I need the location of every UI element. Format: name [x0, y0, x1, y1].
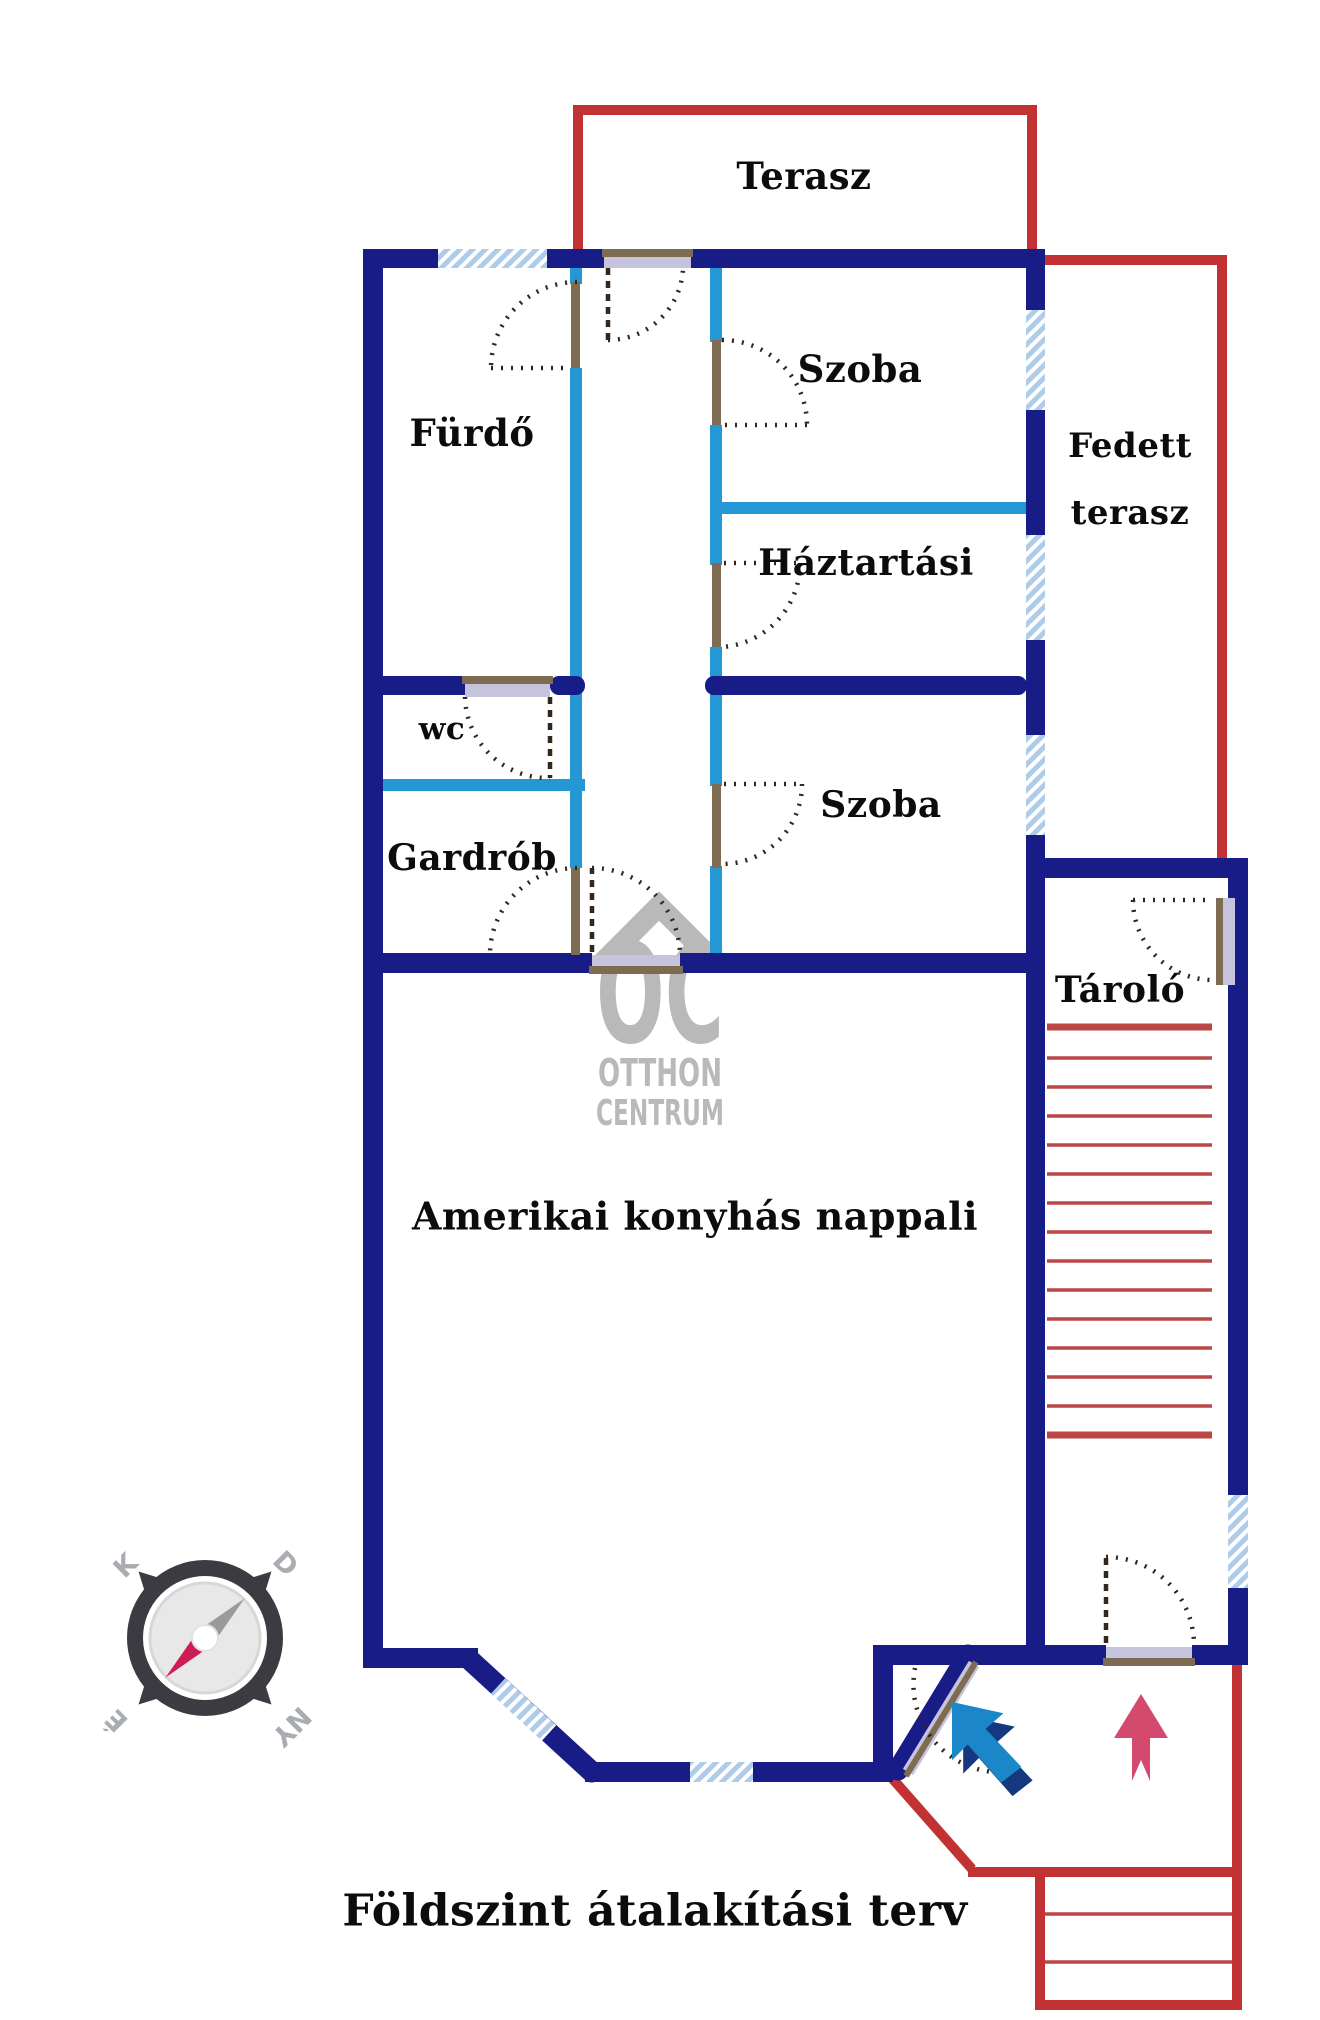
wall-furdo-wc-b: [550, 676, 585, 695]
room-label-fedett-line2: terasz: [1068, 480, 1192, 547]
door-corridor-fill: [592, 955, 680, 966]
compass-letter-east: K: [108, 1547, 145, 1584]
room-label-fedett-line1: Fedett: [1068, 413, 1192, 480]
porch-steps: [1045, 1914, 1232, 1962]
partition-corridor-left-b: [570, 368, 582, 868]
door-tarolo-leaf: [1216, 898, 1223, 985]
wall-haztartasi-szoba: [705, 676, 1027, 695]
partition-corridor-right-d: [710, 866, 722, 955]
window-right-3: [1026, 735, 1045, 835]
partition-wc-gardrob: [383, 779, 585, 791]
wall-right: [1026, 249, 1045, 1645]
floor-plan-canvas: OC OTTHON CENTRUM: [0, 0, 1320, 2020]
door-stairhall-lintel: [1103, 1658, 1195, 1666]
door-terasz-lintel: [602, 249, 693, 257]
wall-nappali-top-b: [680, 953, 1027, 973]
partition-corridor-right-a: [710, 267, 722, 342]
door-szoba1-leaf: [712, 340, 721, 425]
blue-arrow-body: [952, 1702, 1021, 1783]
window-right-1: [1026, 310, 1045, 410]
window-top-wall: [438, 249, 547, 268]
entry-arrows: [952, 1694, 1168, 1796]
wall-bay-right-vertical: [873, 1645, 893, 1782]
wall-left: [363, 249, 383, 1668]
door-szoba2-arc: [722, 784, 802, 864]
wall-furdo-wc-a: [363, 676, 465, 695]
window-stairhall-right: [1228, 1495, 1248, 1588]
watermark-line2: CENTRUM: [596, 1093, 724, 1134]
stair-treads: [1047, 1058, 1212, 1406]
door-tarolo-fill: [1223, 898, 1235, 985]
page-title: Földszint átalakítási terv: [342, 1886, 967, 1937]
door-wc-fill: [465, 684, 550, 697]
wall-nappali-top-a: [383, 953, 592, 973]
partition-corridor-right-c: [710, 647, 722, 786]
fedett-terasz-red-outline: [1045, 260, 1222, 858]
room-label-fedett-terasz: Fedett terasz: [1068, 413, 1192, 547]
door-wc-lintel: [462, 676, 553, 684]
compass-letter-north: É: [99, 1703, 135, 1739]
door-corridor-lintel: [589, 966, 683, 974]
otthon-centrum-watermark: OC OTTHON CENTRUM: [596, 906, 724, 1134]
door-gardrob-leaf: [571, 868, 580, 955]
door-wc-arc: [465, 697, 550, 778]
watermark-line1: OTTHON: [598, 1051, 722, 1095]
partition-szoba-haztartasi: [722, 502, 1027, 514]
door-szoba1-arc: [722, 340, 807, 425]
room-label-szoba-felso: Szoba: [798, 347, 923, 391]
door-gardrob-arc: [490, 868, 577, 953]
wall-stairhall-right-b: [1228, 1588, 1248, 1645]
window-bay-diagonal: [498, 1686, 549, 1733]
window-right-2: [1026, 535, 1045, 640]
staircase: [1047, 1027, 1212, 1435]
door-stairhall-fill: [1106, 1647, 1192, 1658]
door-terasz-arc: [608, 268, 683, 340]
porch-diagonal: [891, 1777, 972, 1869]
door-furdo-arc: [491, 282, 577, 368]
partition-corridor-right-b: [710, 425, 722, 565]
door-haztartasi-leaf: [712, 563, 721, 647]
door-terasz-fill: [604, 257, 691, 268]
wall-stairhall-bottom-b: [1192, 1645, 1248, 1665]
compass-letter-south: D: [266, 1545, 304, 1583]
wall-stairhall-bottom-a: [873, 1645, 1106, 1665]
compass-letter-west: NY: [265, 1700, 317, 1752]
room-label-tarolo: Tároló: [1055, 969, 1185, 1011]
room-label-haztartasi: Háztartási: [758, 542, 974, 584]
door-stairhall-arc: [1106, 1557, 1194, 1643]
door-tarolo-arc: [1133, 900, 1213, 980]
wall-bay-bottom-b: [753, 1762, 893, 1782]
room-label-wc: wc: [419, 711, 466, 747]
covered-terrace-outline: [1045, 260, 1222, 858]
door-szoba2-leaf: [712, 784, 721, 868]
porch-box: [968, 1665, 1242, 2005]
wall-tarolo-top: [1035, 858, 1248, 878]
window-bay-bottom: [690, 1762, 753, 1782]
compass-rose: K D É NY: [99, 1545, 317, 1752]
room-label-terasz: Terasz: [736, 154, 871, 198]
door-furdo-leaf: [571, 282, 580, 368]
blue-entry-arrow: [952, 1702, 1033, 1796]
room-label-furdo: Fürdő: [409, 411, 534, 455]
pink-up-arrow: [1114, 1694, 1168, 1781]
compass-hub: [192, 1625, 218, 1651]
room-label-szoba-also: Szoba: [820, 784, 941, 826]
room-label-nappali: Amerikai konyhás nappali: [412, 1194, 978, 1239]
room-label-gardrob: Gardrób: [387, 837, 557, 879]
